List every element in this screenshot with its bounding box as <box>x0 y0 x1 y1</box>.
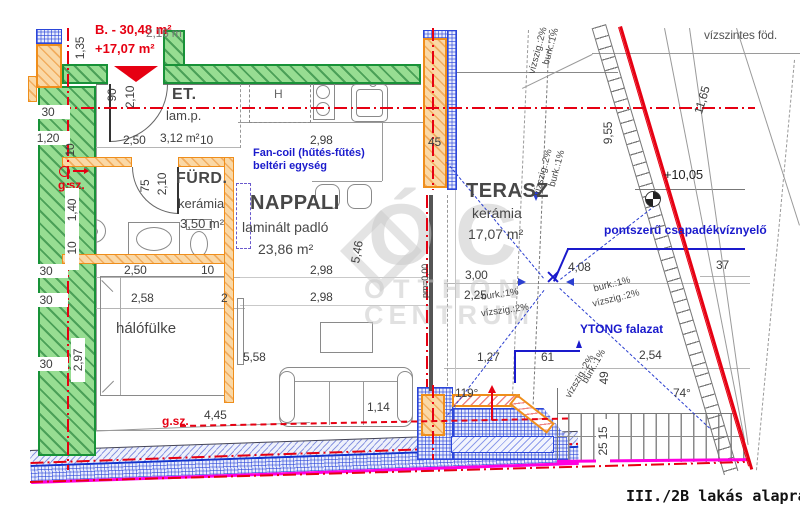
stair-direction-arrow <box>488 385 496 393</box>
dim-label: 45 <box>428 135 441 149</box>
room-floor-nappali: laminált padló <box>242 219 328 235</box>
parapet-mark: pm=0,00 <box>420 259 430 303</box>
sofa-back-line <box>295 381 397 382</box>
room-name-halofulke: hálófülke <box>116 320 176 337</box>
dim-line <box>96 147 240 148</box>
slope-arrow-left <box>566 278 574 286</box>
fan-coil-note-1: Fan-coil (hűtés-fűtés) <box>253 147 365 159</box>
dim-label: 30 <box>24 357 68 371</box>
dim-label: 30 <box>24 293 68 307</box>
dim-label: 1,35 <box>73 26 87 70</box>
stair-direction-line <box>491 392 493 420</box>
sofa-cushion-line <box>329 382 330 425</box>
floor-plan-canvas: ÓC OTTHON CENTRUM ET. lam.p. FÜRD. kerám… <box>0 0 800 515</box>
sofa-arm <box>279 371 295 423</box>
dim-label: 2,54 <box>639 348 662 362</box>
dim-label: 61 <box>541 350 554 364</box>
stair-edge-line <box>557 388 558 461</box>
dim-label: 3,00 <box>465 268 488 282</box>
boundary-dashed-diagonal <box>756 60 795 470</box>
drain-leader-line <box>567 248 745 250</box>
dim-label: 10 <box>63 128 77 172</box>
dim-label: 10 <box>200 133 213 147</box>
dim-label: 10 <box>201 263 214 277</box>
dim-label: 2,98 <box>310 290 333 304</box>
ytong-leader-line <box>514 350 516 383</box>
dim-label: 1,14 <box>367 400 390 414</box>
dim-label: 2,10 <box>123 75 137 119</box>
bar-counter-line <box>382 123 383 181</box>
wall-new-top-left <box>36 44 62 88</box>
level-value: +10,05 <box>664 167 703 182</box>
room-edge-line <box>96 430 430 431</box>
drain-note: pontszerű csapadékvíznyelő <box>604 223 767 237</box>
washbasin <box>136 227 172 251</box>
dim-label: 30 <box>24 264 68 278</box>
terrace-area-label: +17,07 m² <box>95 41 155 56</box>
sink-basin <box>356 89 383 117</box>
dim-label: 2,10 <box>155 162 169 206</box>
room-area-terasz: 17,07 m² <box>468 226 523 242</box>
slab-edge-line <box>592 53 800 54</box>
axis-line-pillar <box>432 385 434 460</box>
dim-label: 5,58 <box>243 350 266 364</box>
gsz-label: g.sz. <box>162 414 189 428</box>
room-area-nappali: 23,86 m² <box>258 241 313 257</box>
dim-label: 2,98 <box>310 263 333 277</box>
foundation-strip <box>451 436 554 453</box>
dim-label: 2,97 <box>71 338 85 382</box>
dim-label: 25 15 <box>596 419 610 463</box>
dim-label: 2,50 <box>123 133 146 147</box>
drawing-title: III./2B lakás alaprajz <box>626 487 800 505</box>
wall-partition-vertical <box>224 157 234 403</box>
dim-label: 2,16 m <box>146 26 182 40</box>
dim-label: 2,50 <box>124 263 147 277</box>
room-area-furdo: 3,50 m² <box>180 216 224 231</box>
room-floor-furdo: kerámia <box>178 196 224 211</box>
dim-label: 90 <box>105 73 119 117</box>
slab-note: vízszintes föd. <box>704 28 777 42</box>
level-marker-icon <box>645 191 661 207</box>
dim-label: 1,27 <box>477 350 500 364</box>
section-line-horizontal <box>35 107 755 109</box>
red-boundary-line-thin <box>618 27 749 466</box>
room-floor-terasz: kerámia <box>472 205 522 221</box>
hob-symbol: H <box>274 87 282 101</box>
hob-dashed-box <box>249 79 311 123</box>
dim-label: 75 <box>138 164 152 208</box>
kitchen-divider-line <box>240 84 241 148</box>
stove-burner <box>316 85 330 99</box>
fan-coil-unit <box>236 183 251 249</box>
dim-label: 30 <box>26 105 70 119</box>
stove-burner <box>316 102 330 116</box>
dim-label: 4,08 <box>568 260 591 274</box>
pillar-new-central <box>423 38 447 188</box>
sloped-wall-ladder-hatch <box>592 24 739 475</box>
dim-label: 37 <box>716 258 729 272</box>
sofa <box>279 367 413 427</box>
boundary-diagonal <box>736 28 800 226</box>
wall-existing-top-b <box>163 64 421 84</box>
dim-label: 9,55 <box>601 111 615 155</box>
room-name-furdo: FÜRD. <box>176 170 227 188</box>
bar-counter-line <box>312 181 382 182</box>
insulation-top-left <box>36 29 62 44</box>
sofa-cushion-line <box>363 382 364 425</box>
sofa-arm <box>397 371 413 423</box>
room-name-et: ET. <box>172 86 197 104</box>
fan-coil-note-2: beltéri egység <box>253 160 327 172</box>
dim-label: 2 <box>221 291 227 305</box>
dim-label: 2,58 <box>131 291 154 305</box>
dim-label: 74° <box>673 386 691 400</box>
room-name-nappali: NAPPALI <box>250 192 340 215</box>
dim-label: 11,65 <box>689 77 715 123</box>
dim-label: 4,45 <box>204 408 227 422</box>
red-arrow-head <box>84 168 89 174</box>
ytong-note: YTONG falazat <box>580 322 663 336</box>
room-floor-et: lam.p. <box>166 108 201 123</box>
dim-label: 3,12 m² <box>160 131 199 145</box>
wall-new-tab <box>28 76 37 102</box>
dim-label: 119° <box>455 386 478 400</box>
dim-label: 2,98 <box>310 133 333 147</box>
axis-line-pillar <box>432 28 434 190</box>
ytong-arrow <box>576 340 582 348</box>
